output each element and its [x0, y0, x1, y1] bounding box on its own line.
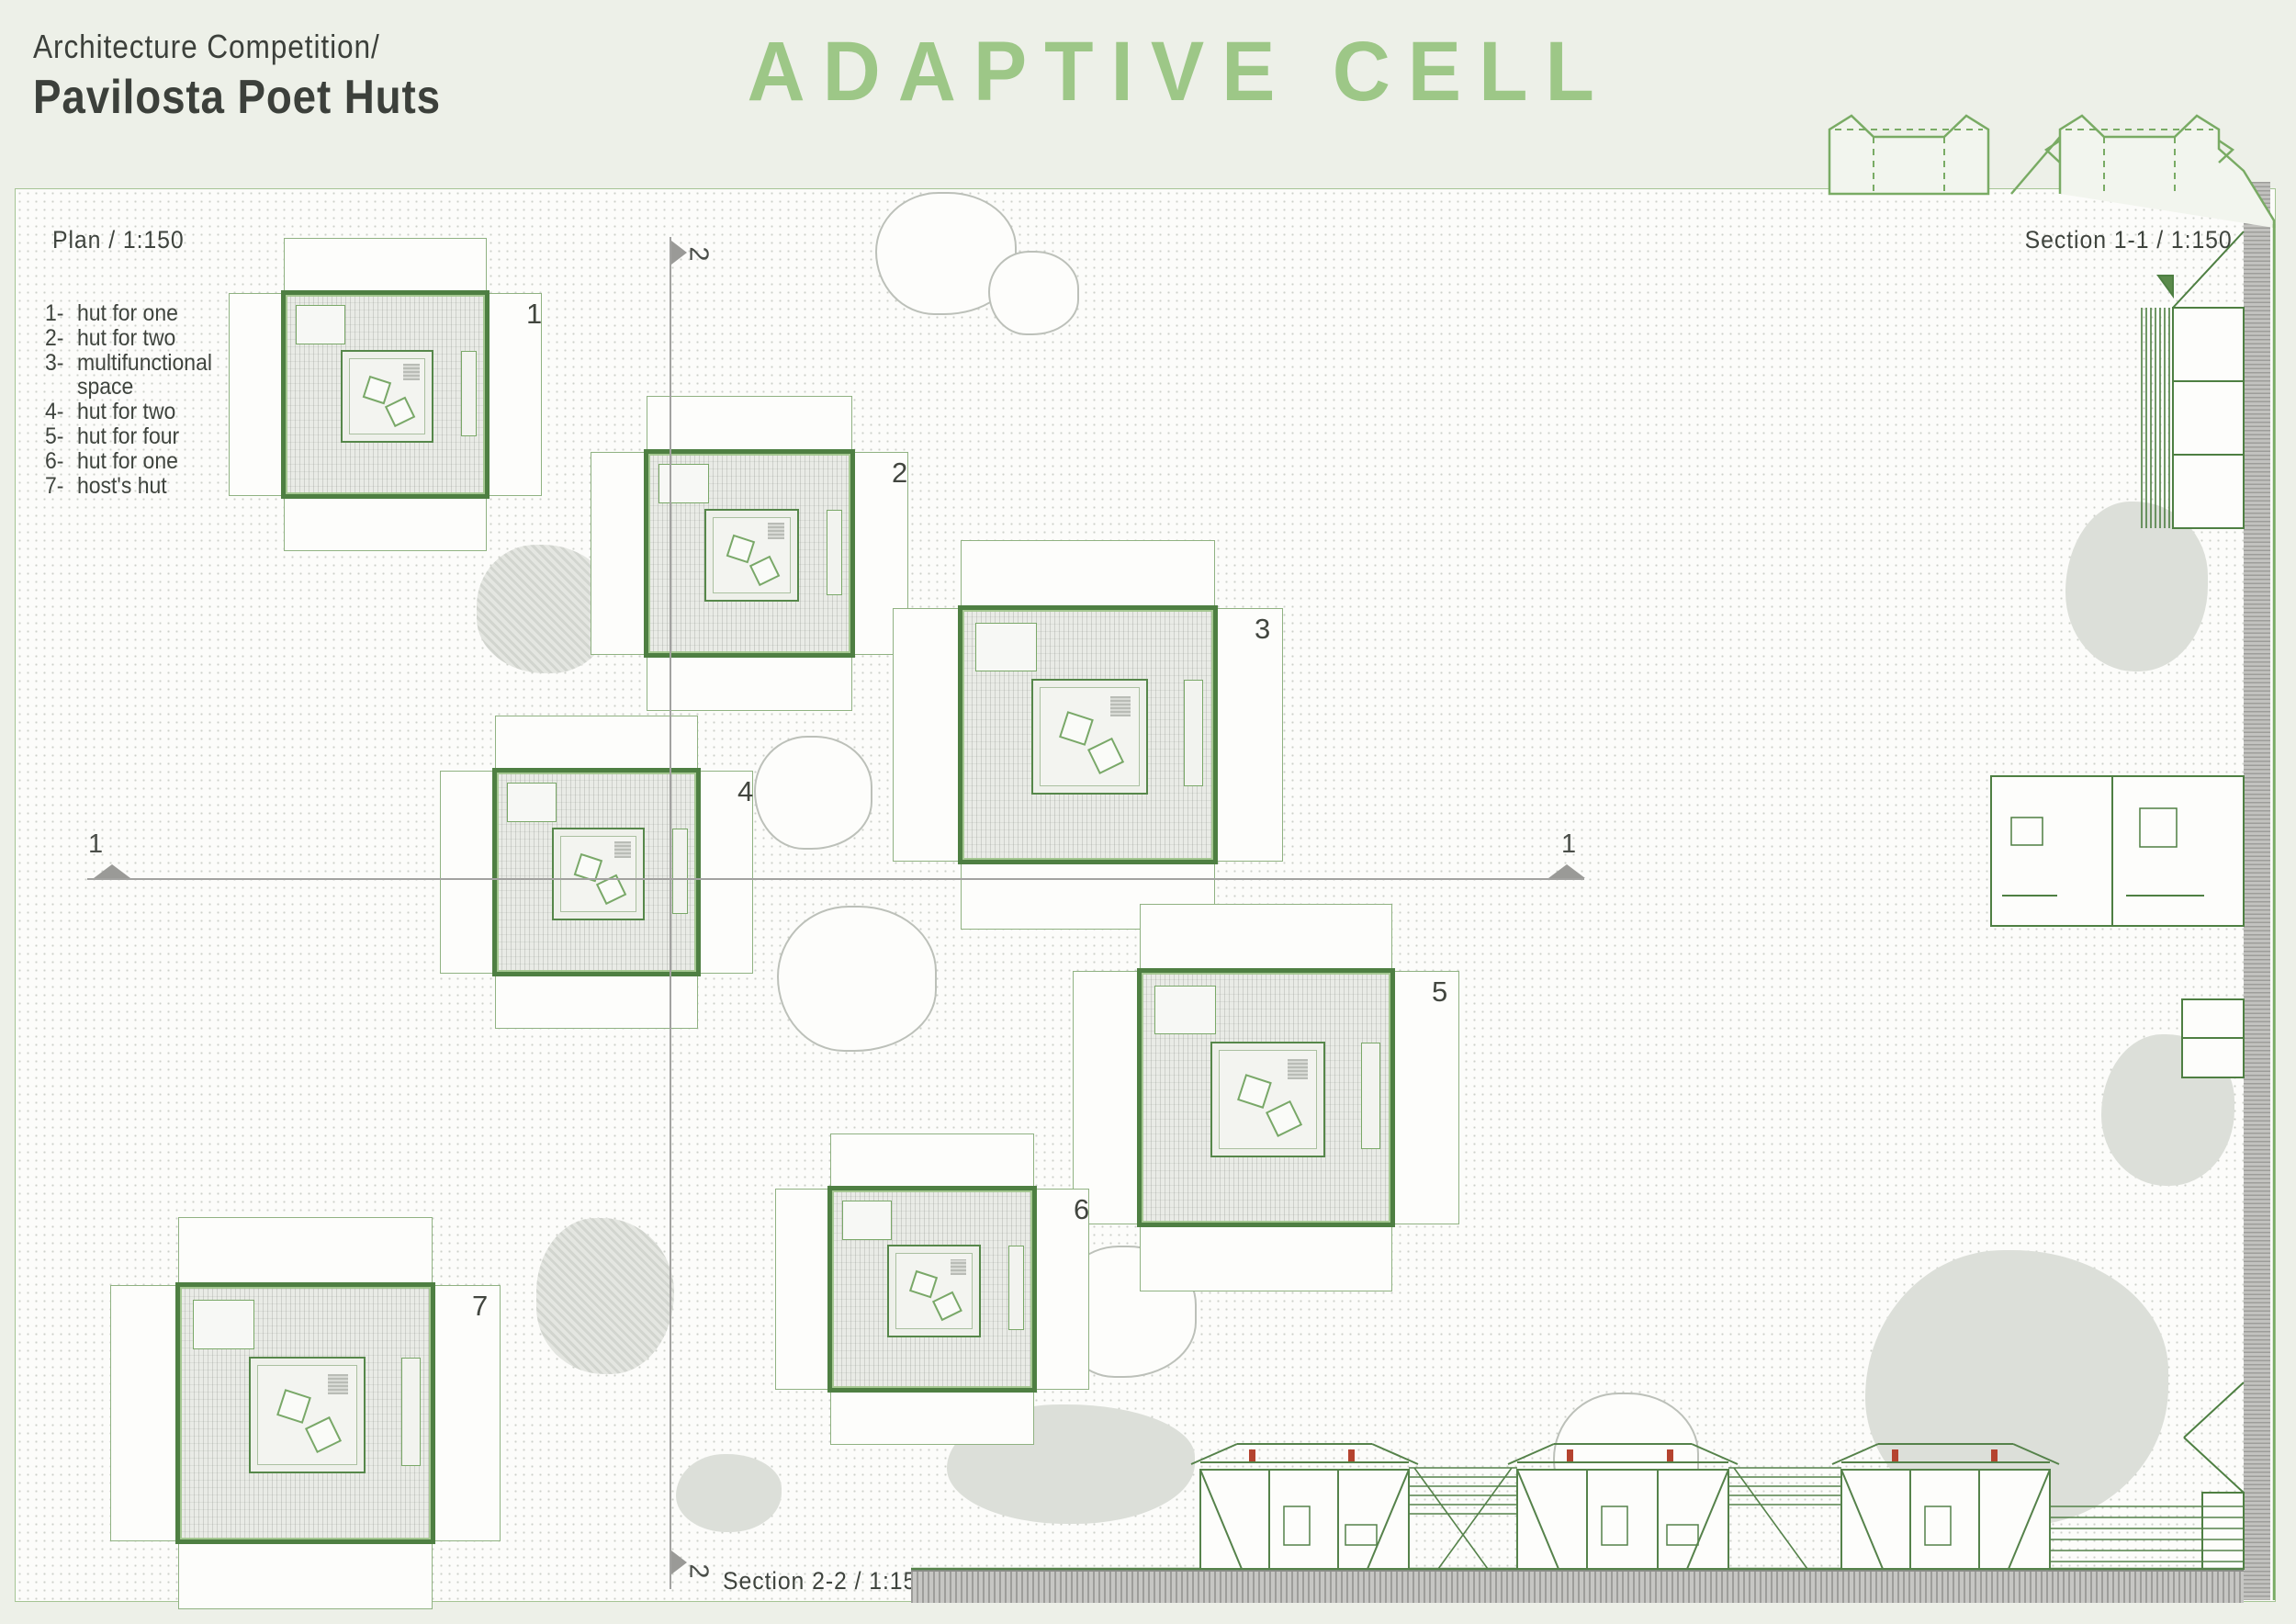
tree — [676, 1454, 782, 1532]
hut-courtyard — [887, 1245, 981, 1337]
hut-courtyard — [249, 1357, 366, 1474]
legend-item: 2-hut for two — [45, 326, 227, 350]
hut-number: 2 — [892, 457, 907, 490]
hut-deck-flap — [1140, 904, 1392, 970]
hut-deck-flap — [433, 1285, 501, 1541]
hut-courtyard — [552, 828, 646, 921]
hut-deck-flap — [440, 771, 494, 974]
hut-walls — [958, 605, 1218, 864]
tree — [2065, 502, 2208, 671]
legend-item-text: hut for four — [77, 424, 227, 448]
hut-deck-flap — [830, 1133, 1034, 1188]
hut-plan-6: 6 — [827, 1186, 1037, 1393]
section-cut-line-1 — [87, 878, 1584, 880]
section-2-label: Section 2-2 / 1:150 — [723, 1567, 930, 1596]
legend-item: 6-hut for one — [45, 449, 227, 473]
hut-deck-flap — [178, 1217, 433, 1284]
legend-item: 3-multifunctional space — [45, 351, 227, 399]
legend-item-text: hut for one — [77, 449, 227, 473]
tree — [536, 1218, 674, 1374]
hut-number: 6 — [1074, 1193, 1089, 1226]
hut-walls — [644, 449, 855, 658]
hut-number: 7 — [472, 1290, 488, 1323]
main-title: ADAPTIVE CELL — [748, 24, 1568, 120]
competition-series-title: Architecture Competition/ — [33, 28, 441, 66]
section-1-ground-band — [2244, 182, 2270, 1600]
hut-deck-flap — [1216, 608, 1283, 862]
legend-item-number: 3- — [45, 351, 77, 399]
hut-number: 1 — [526, 298, 542, 331]
courtyard-table — [305, 1416, 342, 1453]
hut-number: 4 — [737, 775, 753, 808]
legend-item-number: 6- — [45, 449, 77, 473]
courtyard-table — [932, 1291, 962, 1322]
courtyard-table — [1059, 711, 1094, 745]
legend-item-number: 5- — [45, 424, 77, 448]
legend-item: 5-hut for four — [45, 424, 227, 448]
competition-board: Architecture Competition/ Pavilosta Poet… — [0, 0, 2296, 1624]
hut-number: 5 — [1432, 976, 1447, 1009]
legend-item-text: hut for two — [77, 400, 227, 423]
courtyard-table — [385, 397, 415, 427]
cut-2-number: 2 — [683, 246, 714, 261]
section-1-label: Section 1-1 / 1:150 — [2025, 226, 2233, 254]
legend-item-text: hut for one — [77, 301, 227, 325]
hut-deck-flap — [830, 1391, 1034, 1445]
tree — [988, 251, 1079, 335]
cut-1-number: 1 — [1561, 829, 1576, 860]
courtyard-table — [574, 853, 602, 882]
hut-deck-flap — [1073, 971, 1139, 1224]
cut-1-arrow-left — [94, 864, 130, 878]
courtyard-table — [1237, 1074, 1271, 1108]
legend-item-text: multifunctional space — [77, 351, 227, 399]
legend-item-number: 2- — [45, 326, 77, 350]
cut-2-number: 2 — [683, 1563, 714, 1578]
courtyard-table — [1266, 1100, 1302, 1137]
hut-plan-1: 1 — [281, 290, 490, 499]
hut-deck-flap — [284, 238, 487, 292]
hut-deck-flap — [495, 975, 698, 1029]
hut-deck-flap — [647, 656, 852, 711]
hut-deck-flap — [893, 608, 960, 862]
hut-deck-flap — [775, 1189, 829, 1390]
courtyard-table — [909, 1270, 938, 1299]
hut-walls — [175, 1282, 435, 1544]
hut-deck-flap — [1393, 971, 1459, 1224]
hut-walls — [827, 1186, 1037, 1393]
legend-item-number: 7- — [45, 474, 77, 498]
hut-courtyard — [704, 509, 799, 603]
hut-deck-flap — [591, 452, 646, 655]
hut-deck-flap — [178, 1542, 433, 1609]
hut-deck-flap — [110, 1285, 177, 1541]
legend-item: 7-host's hut — [45, 474, 227, 498]
tree — [1865, 1250, 2168, 1526]
hut-plan-2: 2 — [644, 449, 855, 658]
cut-1-number: 1 — [88, 829, 103, 860]
hut-plan-5: 5 — [1137, 968, 1395, 1227]
hut-deck-flap — [495, 716, 698, 770]
section-cut-line-2 — [670, 237, 671, 1589]
hut-courtyard — [341, 350, 434, 444]
legend-item: 1-hut for one — [45, 301, 227, 325]
hut-walls — [281, 290, 490, 499]
plan-scale-label: Plan / 1:150 — [52, 226, 185, 254]
courtyard-table — [363, 376, 391, 404]
hut-deck-flap — [961, 540, 1215, 607]
tree — [754, 736, 872, 850]
tree — [2101, 1034, 2234, 1186]
hut-deck-flap — [229, 293, 283, 496]
hut-number: 3 — [1255, 613, 1270, 646]
courtyard-table — [276, 1389, 311, 1424]
tree — [1553, 1393, 1699, 1529]
title-block: Architecture Competition/ Pavilosta Poet… — [33, 28, 441, 125]
legend-item-text: hut for two — [77, 326, 227, 350]
tree — [777, 906, 937, 1052]
cut-1-arrow-right — [1548, 864, 1585, 878]
courtyard-table — [749, 556, 780, 586]
hut-courtyard — [1031, 679, 1148, 795]
hut-walls — [1137, 968, 1395, 1227]
section-2-ground-band — [911, 1569, 2244, 1603]
legend-item-text: host's hut — [77, 474, 227, 498]
project-title: Pavilosta Poet Huts — [33, 70, 441, 125]
hut-courtyard — [1210, 1042, 1326, 1157]
hut-deck-flap — [1140, 1225, 1392, 1291]
courtyard-table — [726, 535, 755, 563]
hut-deck-flap — [284, 497, 487, 551]
hut-plan-3: 3 — [958, 605, 1218, 864]
legend-item-number: 1- — [45, 301, 77, 325]
hut-deck-flap — [647, 396, 852, 451]
plan-area: Plan / 1:150 Section 1-1 / 1:150 Section… — [15, 188, 2276, 1602]
legend-item: 4-hut for two — [45, 400, 227, 423]
legend: 1-hut for one2-hut for two3-multifunctio… — [45, 301, 227, 499]
legend-item-number: 4- — [45, 400, 77, 423]
hut-plan-7: 7 — [175, 1282, 435, 1544]
courtyard-table — [1087, 738, 1124, 774]
